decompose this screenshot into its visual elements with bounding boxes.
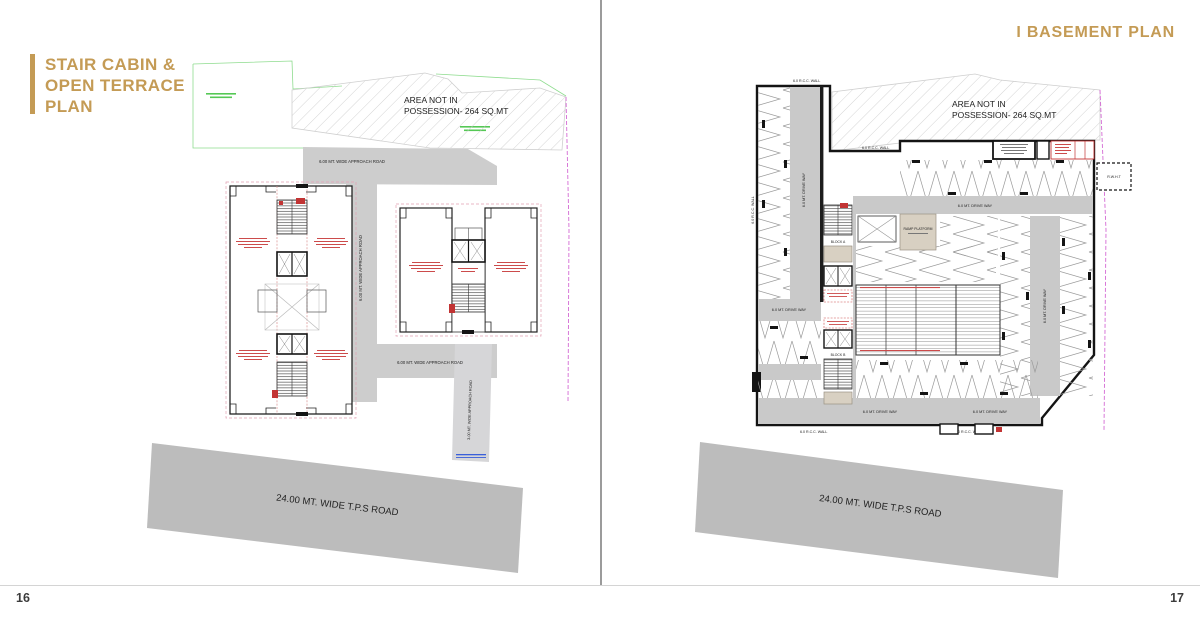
rwht-box: R.W.H.T [1097, 163, 1131, 190]
svg-text:6.0 MT. DRIVE WAY: 6.0 MT. DRIVE WAY [973, 410, 1008, 414]
red-mark-bottom [996, 427, 1002, 432]
blue-note-underline [456, 457, 486, 458]
svg-text:6.0 MT. DRIVE WAY: 6.0 MT. DRIVE WAY [1043, 288, 1047, 323]
area-note-line1-left: AREA NOT IN [404, 95, 458, 105]
area-not-in-possession-right: AREA NOT IN POSSESSION- 264 SQ.MT [832, 74, 1100, 151]
title-line-2: OPEN TERRACE [45, 75, 185, 96]
approach-road-vertical-label: 6.00 MT. WIDE APPROACH ROAD [358, 235, 363, 301]
rwht-label: R.W.H.T [1107, 175, 1121, 179]
brochure-spread: AREA NOT IN POSSESSION- 264 SQ.MT 6.00 M… [0, 0, 1200, 621]
tps-road-left: 24.00 MT. WIDE T.P.S ROAD [147, 443, 523, 573]
svg-text:6.0 R.C.C. WALL: 6.0 R.C.C. WALL [862, 146, 889, 150]
title-line-3: PLAN [45, 96, 185, 117]
left-site-plan: AREA NOT IN POSSESSION- 264 SQ.MT 6.00 M… [147, 61, 569, 573]
right-page-title: I BASEMENT PLAN [1016, 24, 1175, 42]
title-accent-bar [30, 54, 35, 114]
svg-text:6.0 R.C.C. WALL: 6.0 R.C.C. WALL [800, 430, 827, 434]
stair-red-top-b1 [296, 198, 305, 204]
area-note-line2-left: POSSESSION- 264 SQ.MT [404, 106, 508, 116]
tps-road-right: 24.00 MT. WIDE T.P.S ROAD [695, 442, 1063, 578]
svg-text:6.0 R.C.C. WALL: 6.0 R.C.C. WALL [793, 79, 820, 83]
svg-text:6.0 MT. DRIVE WAY: 6.0 MT. DRIVE WAY [772, 308, 807, 312]
blue-note-mark [456, 454, 486, 455]
page-number-right: 17 [1170, 591, 1184, 605]
boundary-line-magenta-left [566, 97, 569, 402]
block-a-label: BLOCK A [831, 240, 846, 244]
core-b2 [449, 228, 485, 334]
block-b-label: BLOCK B [831, 353, 846, 357]
area-not-in-possession-left: AREA NOT IN POSSESSION- 264 SQ.MT [292, 73, 566, 150]
svg-text:6.0 MT. DRIVE WAY: 6.0 MT. DRIVE WAY [863, 410, 898, 414]
stair-red-bottom-b1 [272, 390, 278, 398]
approach-road-bottom-label: 6.00 MT. WIDE APPROACH ROAD [397, 360, 463, 365]
svg-text:6.0 MT. DRIVE WAY: 6.0 MT. DRIVE WAY [958, 204, 993, 208]
building-1 [230, 184, 352, 416]
lifts-lower-b1 [277, 334, 307, 354]
ramp-platform-label: RAMP PLATFORM [904, 227, 933, 231]
title-line-1: STAIR CABIN & [45, 54, 185, 75]
approach-road-top-label: 6.00 MT. WIDE APPROACH ROAD [319, 159, 385, 164]
fire-tank-boxes [993, 141, 1094, 159]
page-divider [600, 0, 602, 586]
area-note-line2-right: POSSESSION- 264 SQ.MT [952, 110, 1056, 120]
lifts-upper-b1 [277, 252, 307, 276]
ramp-platform: RAMP PLATFORM [900, 214, 936, 250]
building-2 [400, 208, 537, 334]
basement-plan: AREA NOT IN POSSESSION- 264 SQ.MT [695, 74, 1131, 578]
svg-text:6.0 R.C.C. WALL: 6.0 R.C.C. WALL [751, 196, 755, 223]
boundary-line-magenta-right [1100, 90, 1106, 430]
stair-red-b2 [449, 304, 455, 313]
page-number-left: 16 [16, 591, 30, 605]
area-note-line1-right: AREA NOT IN [952, 99, 1006, 109]
inner-wall [820, 86, 823, 302]
svg-text:6.0 MT. DRIVE WAY: 6.0 MT. DRIVE WAY [802, 172, 806, 207]
left-page-title: STAIR CABIN & OPEN TERRACE PLAN [30, 54, 185, 117]
footer-rule [0, 585, 1200, 586]
